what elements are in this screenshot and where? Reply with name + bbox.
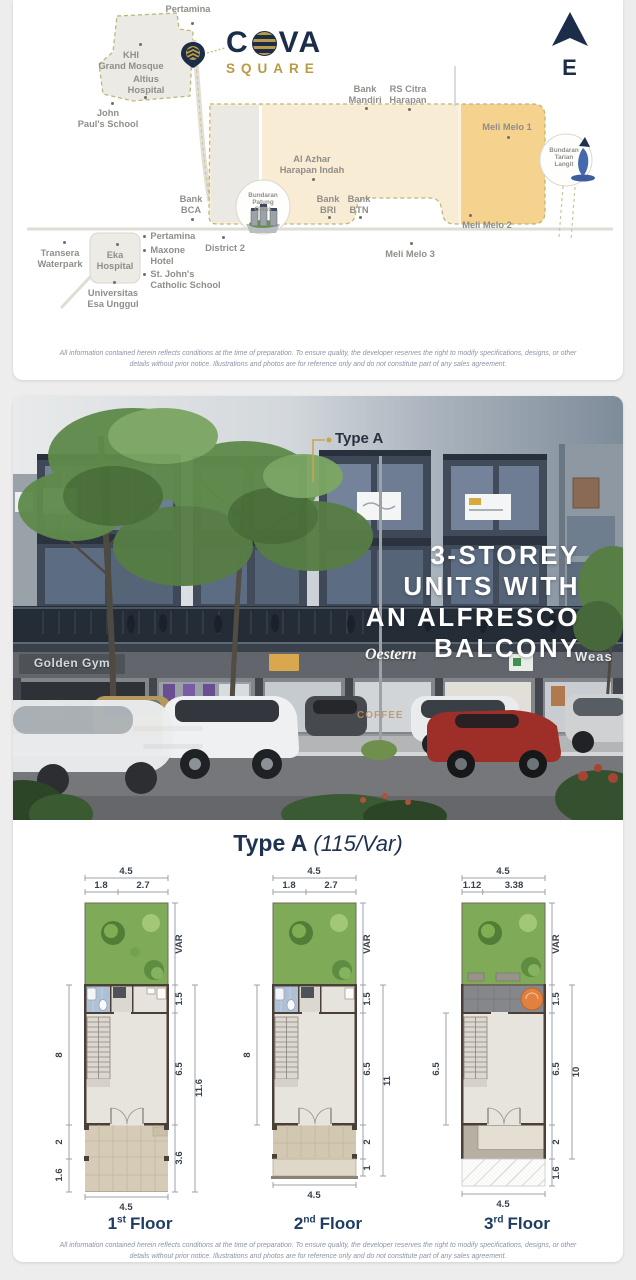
compass-label: E [548, 55, 592, 81]
map-list-st-johns: St. John's Catholic School [143, 269, 221, 291]
floorplan-3: 4.5 1.12 3.38 VAR 1.5 6.5 2 1.6 10 6.5 4… [432, 867, 602, 1219]
floorplan-2: 4.5 1.8 2.7 VAR 1.5 6.5 2 1 11 8 4.5 [243, 867, 413, 1219]
map-label-bundaran-tarian: Bundaran Tarian Langit [542, 147, 586, 169]
shop-sign-oestern: Oestern [365, 646, 417, 664]
map-label-bank-bca: Bank BCA [180, 194, 203, 216]
map-label-meli-melo-2: Meli Melo 2 [462, 220, 512, 231]
type-a-callout-label: Type A [335, 430, 383, 447]
svg-text:1.5: 1.5 [362, 992, 373, 1006]
svg-text:6.5: 6.5 [362, 1062, 373, 1076]
map-label-universitas: Universitas Esa Unggul [87, 288, 138, 310]
svg-text:3.38: 3.38 [505, 880, 524, 891]
type-a-card: Type A 3-STOREY UNITS WITH AN ALFRESCO B… [13, 396, 623, 1262]
logo-leaf-o-icon [252, 31, 277, 56]
svg-text:6.5: 6.5 [432, 1062, 442, 1076]
map-disclaimer: All information contained herein reflect… [58, 349, 578, 370]
poi-dot-icon [143, 273, 146, 276]
svg-text:2: 2 [362, 1139, 373, 1144]
bottom-disclaimer: All information contained herein reflect… [58, 1241, 578, 1262]
svg-text:1.6: 1.6 [551, 1166, 562, 1179]
map-label-district-2: District 2 [205, 243, 245, 254]
compass-north-arrow-icon [550, 12, 590, 48]
svg-text:8: 8 [243, 1052, 253, 1057]
svg-text:VAR: VAR [174, 934, 185, 953]
poi-dot-icon [143, 235, 146, 238]
floorplan-title-type: Type A [233, 830, 307, 856]
svg-text:4.5: 4.5 [307, 1190, 321, 1201]
map-label-pertamina-top: Pertamina [166, 4, 211, 15]
map-label-bundaran-patung: Bundaran Patung Gelas [240, 192, 286, 214]
map-label-eka: Eka Hospital [97, 250, 134, 272]
svg-text:8: 8 [55, 1052, 65, 1057]
map-label-al-azhar: Al Azhar Harapan Indah [280, 154, 345, 176]
svg-text:1.6: 1.6 [55, 1168, 65, 1181]
logo-part1: C [226, 26, 250, 60]
svg-text:1.5: 1.5 [174, 992, 185, 1006]
svg-text:6.5: 6.5 [551, 1062, 562, 1076]
svg-text:1: 1 [362, 1165, 373, 1171]
svg-text:4.5: 4.5 [496, 1199, 510, 1210]
map-label-rs-citra: RS Citra Harapan [389, 84, 426, 106]
svg-text:11.6: 11.6 [194, 1079, 205, 1097]
svg-text:2.7: 2.7 [324, 880, 337, 891]
poi-dot-icon [143, 249, 146, 252]
svg-text:VAR: VAR [362, 934, 373, 953]
logo-subtitle: SQUARE [226, 61, 322, 76]
svg-text:1.12: 1.12 [463, 880, 482, 891]
location-map-card: E CVA SQUARE Pertamina KHI Grand Mosque … [13, 0, 623, 380]
svg-text:4.5: 4.5 [307, 867, 321, 877]
compass: E [548, 12, 592, 81]
svg-text:4.5: 4.5 [119, 1202, 133, 1213]
svg-text:6.5: 6.5 [174, 1062, 185, 1076]
map-label-bank-bri: Bank BRI [317, 194, 340, 216]
building-render-photo: Type A 3-STOREY UNITS WITH AN ALFRESCO B… [13, 396, 623, 820]
map-label-meli-melo-1: Meli Melo 1 [482, 122, 532, 133]
floorplan-title-spec: (115/Var) [313, 831, 402, 856]
svg-text:1.5: 1.5 [551, 992, 562, 1006]
map-label-transera: Transera Waterpark [37, 248, 82, 270]
floor-label-1: 1stFloor [55, 1214, 225, 1234]
floorplan-1: 4.5 1.8 2.7 VAR 1.5 6.5 3.6 11.6 8 2 1.6… [55, 867, 225, 1219]
svg-text:1.8: 1.8 [282, 880, 295, 891]
shop-sign-coffee: COFFEE [357, 710, 404, 721]
svg-text:2.7: 2.7 [136, 880, 149, 891]
map-list-maxone: Maxone Hotel [143, 245, 185, 267]
cova-square-logo: CVA SQUARE [226, 26, 322, 76]
map-label-bank-mandiri: Bank Mandiri [348, 84, 381, 106]
shop-sign-golden-gym: Golden Gym [19, 656, 125, 670]
floor-label-3: 3rdFloor [432, 1214, 602, 1234]
logo-part2: VA [279, 26, 322, 60]
map-label-bank-btn: Bank BTN [348, 194, 371, 216]
floor-label-2: 2ndFloor [243, 1214, 413, 1234]
brochure-page: E CVA SQUARE Pertamina KHI Grand Mosque … [0, 0, 636, 1280]
map-label-meli-melo-3: Meli Melo 3 [385, 249, 435, 260]
map-label-altius: Altius Hospital [128, 74, 165, 96]
svg-text:1.8: 1.8 [94, 880, 107, 891]
shop-sign-weas: Weas [575, 649, 623, 664]
svg-text:10: 10 [571, 1067, 582, 1078]
svg-text:2: 2 [55, 1139, 65, 1144]
svg-text:4.5: 4.5 [496, 867, 510, 877]
svg-text:VAR: VAR [551, 934, 562, 953]
map-label-john-pauls: John Paul's School [78, 108, 139, 130]
map-label-khi: KHI Grand Mosque [98, 50, 163, 72]
svg-text:11: 11 [382, 1075, 393, 1086]
svg-text:3.6: 3.6 [174, 1151, 185, 1164]
svg-text:4.5: 4.5 [119, 867, 133, 877]
svg-text:2: 2 [551, 1139, 562, 1144]
floorplan-title: Type A(115/Var) [13, 830, 623, 857]
map-list-pertamina: Pertamina [143, 231, 195, 242]
